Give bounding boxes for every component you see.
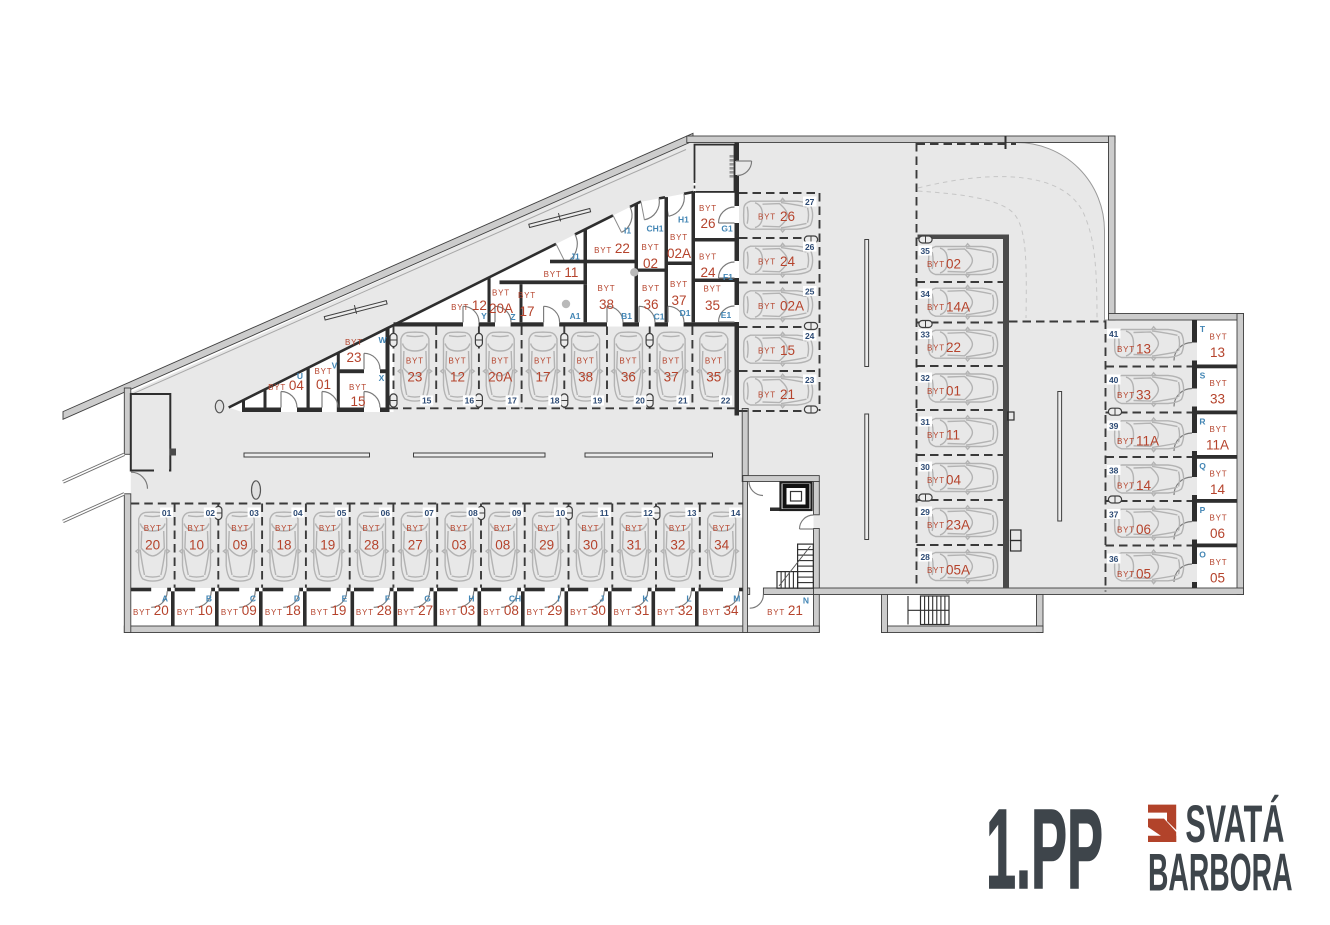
svg-text:Z: Z xyxy=(510,312,515,322)
svg-text:J1: J1 xyxy=(570,252,580,262)
svg-text:01: 01 xyxy=(946,384,961,399)
svg-text:02: 02 xyxy=(946,257,961,272)
svg-text:BYT: BYT xyxy=(642,243,660,252)
svg-text:24: 24 xyxy=(805,331,815,341)
svg-text:BYT: BYT xyxy=(406,357,424,366)
svg-text:21: 21 xyxy=(678,396,688,406)
svg-text:33: 33 xyxy=(920,330,930,340)
svg-text:BYT: BYT xyxy=(1117,437,1135,446)
svg-text:19: 19 xyxy=(320,538,335,553)
svg-text:36: 36 xyxy=(1109,554,1119,564)
svg-text:BYT: BYT xyxy=(662,357,680,366)
svg-text:18: 18 xyxy=(276,538,291,553)
svg-text:11: 11 xyxy=(946,428,960,443)
svg-text:16: 16 xyxy=(465,396,475,406)
svg-text:1.PP: 1.PP xyxy=(986,786,1103,912)
svg-text:BYT: BYT xyxy=(1117,570,1135,579)
svg-text:24: 24 xyxy=(780,254,796,269)
svg-text:38: 38 xyxy=(1109,466,1119,476)
svg-text:15: 15 xyxy=(422,396,432,406)
svg-text:BYT: BYT xyxy=(315,367,333,376)
svg-text:28: 28 xyxy=(364,538,379,553)
svg-text:09: 09 xyxy=(233,538,248,553)
svg-text:04: 04 xyxy=(293,508,303,518)
svg-text:05: 05 xyxy=(1136,567,1151,582)
svg-text:BYT: BYT xyxy=(669,524,687,533)
svg-text:32: 32 xyxy=(670,538,685,553)
svg-text:BYT: BYT xyxy=(1117,391,1135,400)
svg-text:22: 22 xyxy=(946,340,961,355)
svg-text:BYT: BYT xyxy=(349,383,367,392)
svg-text:27: 27 xyxy=(805,197,815,207)
svg-text:CH: CH xyxy=(509,594,521,604)
svg-text:15: 15 xyxy=(350,394,365,409)
svg-text:18: 18 xyxy=(550,396,560,406)
svg-text:BYT: BYT xyxy=(625,524,643,533)
svg-text:09: 09 xyxy=(512,508,522,518)
svg-text:12: 12 xyxy=(450,370,465,385)
svg-text:BYT: BYT xyxy=(581,524,599,533)
svg-text:26: 26 xyxy=(700,216,715,231)
svg-text:05: 05 xyxy=(337,508,347,518)
svg-text:BYT: BYT xyxy=(492,289,510,298)
svg-text:05A: 05A xyxy=(946,563,970,578)
svg-text:BYT: BYT xyxy=(927,303,945,312)
svg-text:11: 11 xyxy=(600,508,609,518)
svg-text:02: 02 xyxy=(643,256,658,271)
svg-text:25: 25 xyxy=(805,287,815,297)
svg-text:02A: 02A xyxy=(667,246,691,261)
svg-text:37: 37 xyxy=(664,370,679,385)
svg-text:BYT: BYT xyxy=(1210,379,1228,388)
svg-text:15: 15 xyxy=(780,343,795,358)
svg-text:14: 14 xyxy=(1136,478,1152,493)
svg-text:F: F xyxy=(385,594,390,604)
svg-text:BYT: BYT xyxy=(1210,558,1228,567)
svg-text:14: 14 xyxy=(731,508,741,518)
svg-text:BYT: BYT xyxy=(1210,425,1228,434)
svg-text:BYT: BYT xyxy=(670,280,688,289)
svg-text:31: 31 xyxy=(627,538,642,553)
svg-text:35: 35 xyxy=(920,246,930,256)
svg-text:03: 03 xyxy=(452,538,467,553)
svg-text:A1: A1 xyxy=(570,311,581,321)
svg-text:23: 23 xyxy=(805,375,815,385)
svg-text:K: K xyxy=(642,594,649,604)
svg-text:J: J xyxy=(600,594,605,604)
svg-text:D: D xyxy=(294,594,300,604)
svg-text:06: 06 xyxy=(1136,522,1151,537)
svg-text:H: H xyxy=(468,594,474,604)
svg-text:BYT: BYT xyxy=(1210,470,1228,479)
svg-text:20: 20 xyxy=(145,538,160,553)
svg-text:BYT: BYT xyxy=(1117,482,1135,491)
svg-text:26: 26 xyxy=(780,209,795,224)
svg-text:23: 23 xyxy=(407,370,422,385)
svg-text:40: 40 xyxy=(1109,375,1119,385)
svg-text:34: 34 xyxy=(714,538,730,553)
svg-text:37: 37 xyxy=(671,293,686,308)
svg-text:BYT: BYT xyxy=(494,524,512,533)
svg-text:23: 23 xyxy=(346,350,361,365)
svg-text:A: A xyxy=(162,594,168,604)
svg-text:26: 26 xyxy=(805,242,815,252)
svg-text:22: 22 xyxy=(721,396,731,406)
svg-text:BARBORA: BARBORA xyxy=(1148,844,1293,903)
svg-text:BYT: BYT xyxy=(518,291,536,300)
svg-text:02: 02 xyxy=(206,508,216,518)
svg-text:G1: G1 xyxy=(721,224,733,234)
svg-text:BYT: BYT xyxy=(758,258,776,267)
svg-text:BYT: BYT xyxy=(758,302,776,311)
svg-text:27: 27 xyxy=(408,538,423,553)
svg-text:14: 14 xyxy=(1210,482,1226,497)
svg-text:39: 39 xyxy=(1109,421,1119,431)
svg-text:11A: 11A xyxy=(1136,434,1159,449)
svg-text:23A: 23A xyxy=(946,518,970,533)
svg-text:29: 29 xyxy=(920,507,930,517)
svg-text:I: I xyxy=(557,594,559,604)
svg-text:02A: 02A xyxy=(780,299,804,314)
svg-text:BYT: BYT xyxy=(704,285,722,294)
svg-text:F1: F1 xyxy=(723,272,733,282)
svg-text:BYT: BYT xyxy=(927,521,945,530)
svg-text:33: 33 xyxy=(1210,392,1225,407)
svg-text:38: 38 xyxy=(599,297,614,312)
svg-text:W: W xyxy=(378,335,387,345)
svg-text:M: M xyxy=(733,594,740,604)
svg-text:BYT: BYT xyxy=(345,338,363,347)
svg-text:37: 37 xyxy=(1109,510,1119,520)
svg-text:11A: 11A xyxy=(1206,438,1229,453)
svg-text:34: 34 xyxy=(920,289,930,299)
svg-text:07: 07 xyxy=(424,508,434,518)
svg-text:CH1: CH1 xyxy=(646,224,663,234)
svg-text:D1: D1 xyxy=(680,308,691,318)
svg-text:BYT: BYT xyxy=(927,566,945,575)
svg-text:BYT: BYT xyxy=(758,391,776,400)
svg-text:30: 30 xyxy=(920,462,930,472)
svg-text:29: 29 xyxy=(539,538,554,553)
svg-text:BYT: BYT xyxy=(1210,333,1228,342)
svg-text:36: 36 xyxy=(621,370,636,385)
svg-text:38: 38 xyxy=(578,370,593,385)
svg-text:01: 01 xyxy=(162,508,172,518)
svg-text:U: U xyxy=(297,371,303,381)
svg-text:Q: Q xyxy=(1199,461,1206,471)
svg-text:13: 13 xyxy=(1210,345,1225,360)
svg-text:20A: 20A xyxy=(488,370,512,385)
svg-text:X: X xyxy=(379,373,385,383)
svg-text:BYT: BYT xyxy=(1117,526,1135,535)
svg-text:B: B xyxy=(206,594,212,604)
svg-text:BYT: BYT xyxy=(699,204,717,213)
svg-text:04: 04 xyxy=(946,473,962,488)
svg-text:BYT: BYT xyxy=(1210,514,1228,523)
svg-text:17: 17 xyxy=(507,396,517,406)
svg-text:BYT: BYT xyxy=(927,387,945,396)
svg-text:BYT: BYT xyxy=(144,524,162,533)
svg-text:BYT: BYT xyxy=(319,524,337,533)
svg-text:13: 13 xyxy=(1136,342,1151,357)
svg-text:BYT: BYT xyxy=(927,260,945,269)
svg-text:E1: E1 xyxy=(721,310,732,320)
svg-text:BYT: BYT xyxy=(534,357,552,366)
svg-text:BYT: BYT xyxy=(231,524,249,533)
svg-text:R: R xyxy=(1199,417,1205,427)
svg-text:06: 06 xyxy=(1210,526,1225,541)
svg-text:BYT: BYT xyxy=(670,233,688,242)
svg-text:V: V xyxy=(332,361,338,371)
svg-text:36: 36 xyxy=(643,297,658,312)
svg-text:32: 32 xyxy=(920,373,930,383)
svg-text:BYT: BYT xyxy=(406,524,424,533)
svg-text:BYT: BYT xyxy=(598,284,616,293)
svg-text:N: N xyxy=(803,596,809,606)
svg-text:30: 30 xyxy=(583,538,598,553)
svg-text:14A: 14A xyxy=(946,300,970,315)
svg-text:P: P xyxy=(1200,505,1206,515)
svg-text:I1: I1 xyxy=(624,226,631,236)
svg-text:35: 35 xyxy=(705,298,720,313)
svg-text:05: 05 xyxy=(1210,571,1225,586)
svg-text:T: T xyxy=(1200,324,1206,334)
svg-text:10: 10 xyxy=(556,508,566,518)
svg-text:C1: C1 xyxy=(654,312,665,322)
svg-text:H1: H1 xyxy=(678,215,689,225)
svg-text:BYT: BYT xyxy=(927,476,945,485)
svg-text:G: G xyxy=(424,594,431,604)
svg-text:03: 03 xyxy=(249,508,259,518)
svg-text:08: 08 xyxy=(495,538,510,553)
svg-text:BYT: BYT xyxy=(758,213,776,222)
svg-text:35: 35 xyxy=(706,370,721,385)
svg-text:20: 20 xyxy=(635,396,645,406)
svg-text:BYT: BYT xyxy=(363,524,381,533)
svg-text:S: S xyxy=(1200,371,1206,381)
svg-text:BYT: BYT xyxy=(538,524,556,533)
svg-text:B1: B1 xyxy=(621,311,632,321)
svg-text:BYT: BYT xyxy=(1117,345,1135,354)
svg-text:Y: Y xyxy=(481,311,487,321)
svg-text:06: 06 xyxy=(381,508,391,518)
svg-text:19: 19 xyxy=(593,396,603,406)
svg-text:BYT: BYT xyxy=(758,347,776,356)
svg-text:21: 21 xyxy=(780,387,795,402)
svg-text:01: 01 xyxy=(316,377,331,392)
svg-text:BYT: BYT xyxy=(642,284,660,293)
svg-text:BYT: BYT xyxy=(491,357,509,366)
svg-text:L: L xyxy=(686,594,691,604)
svg-text:08: 08 xyxy=(468,508,478,518)
svg-text:13: 13 xyxy=(687,508,697,518)
svg-text:24: 24 xyxy=(700,265,716,280)
svg-text:BYT: BYT xyxy=(619,357,637,366)
svg-text:O: O xyxy=(1199,550,1206,560)
svg-text:BYT: BYT xyxy=(927,431,945,440)
svg-text:10: 10 xyxy=(189,538,204,553)
svg-text:17: 17 xyxy=(519,304,534,319)
svg-text:BYT: BYT xyxy=(450,524,468,533)
svg-text:12: 12 xyxy=(643,508,653,518)
svg-text:28: 28 xyxy=(920,552,930,562)
svg-text:C: C xyxy=(250,594,256,604)
svg-text:BYT: BYT xyxy=(713,524,731,533)
svg-text:41: 41 xyxy=(1109,329,1119,339)
svg-text:BYT: BYT xyxy=(705,357,723,366)
svg-text:BYT: BYT xyxy=(699,253,717,262)
svg-text:31: 31 xyxy=(920,417,930,427)
svg-text:BYT: BYT xyxy=(188,524,206,533)
svg-text:BYT: BYT xyxy=(577,357,595,366)
svg-text:17: 17 xyxy=(535,370,550,385)
svg-text:33: 33 xyxy=(1136,388,1151,403)
svg-text:E: E xyxy=(342,594,348,604)
svg-text:BYT: BYT xyxy=(449,357,467,366)
svg-text:BYT: BYT xyxy=(927,344,945,353)
svg-text:BYT: BYT xyxy=(275,524,293,533)
